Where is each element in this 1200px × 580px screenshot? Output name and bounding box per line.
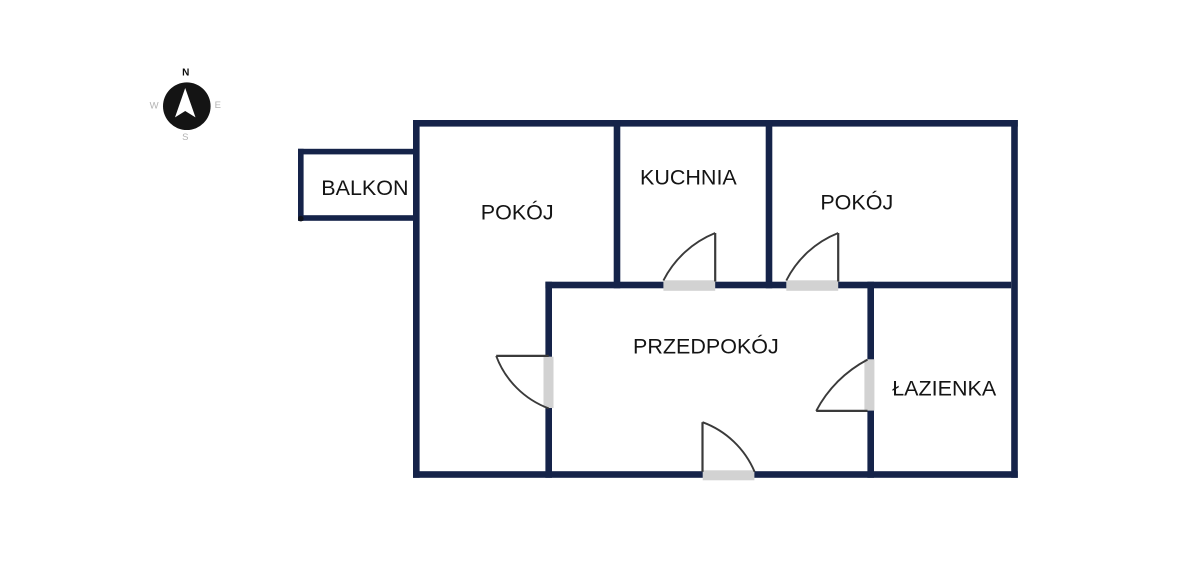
svg-text:POKÓJ: POKÓJ <box>481 200 554 225</box>
svg-text:BALKON: BALKON <box>321 176 408 200</box>
svg-text:KUCHNIA: KUCHNIA <box>640 166 737 190</box>
svg-text:N: N <box>182 68 189 79</box>
svg-text:S: S <box>182 132 188 143</box>
svg-text:POKÓJ: POKÓJ <box>820 190 893 215</box>
svg-text:W: W <box>150 100 159 111</box>
svg-text:E: E <box>215 100 221 111</box>
svg-text:PRZEDPOKÓJ: PRZEDPOKÓJ <box>633 333 779 358</box>
svg-text:ŁAZIENKA: ŁAZIENKA <box>892 377 997 401</box>
